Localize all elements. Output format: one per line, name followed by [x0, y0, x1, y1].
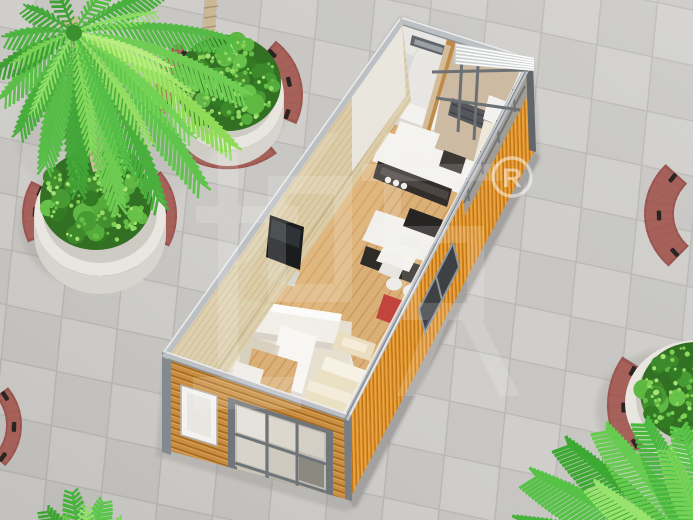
- svg-text:R: R: [502, 163, 522, 193]
